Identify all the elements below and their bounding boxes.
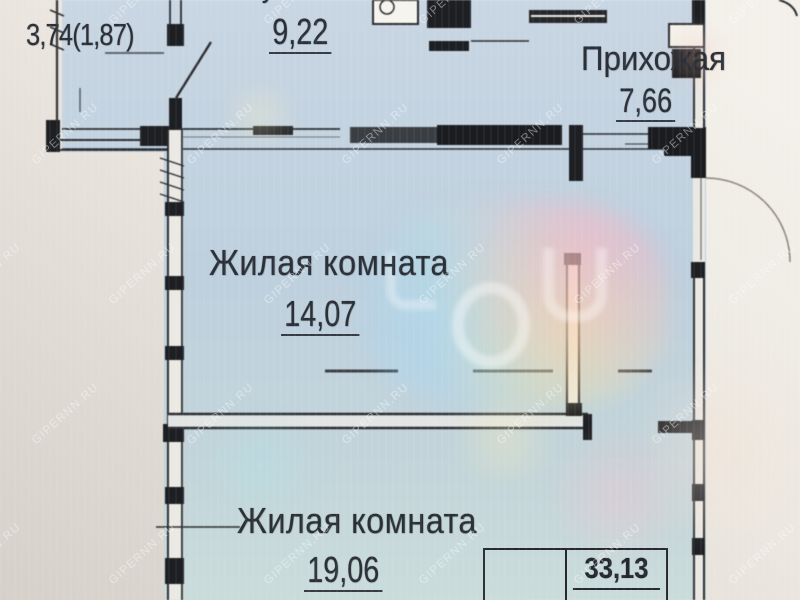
vertical-inner-wall: [564, 253, 582, 416]
area-value-balcony: 3,74(1,87): [26, 19, 134, 50]
left-outer-wall: [160, 130, 184, 600]
area-summary-table: 33,13: [483, 548, 668, 600]
room-label-living-room-2: Жилая комната: [237, 503, 477, 539]
room-label-living-room-1: Жилая комната: [209, 245, 449, 281]
room-label-kitchen: Кухня: [247, 0, 315, 3]
area-value-hallway: 7,66: [616, 84, 675, 122]
area-value-living-room-2: 19,06: [304, 552, 382, 592]
summary-table-empty-cell: [485, 550, 565, 600]
area-value-living-room-1: 14,07: [281, 296, 359, 336]
room-label-hallway: Прихожая: [581, 42, 726, 76]
floor-plan-screenshot: Кухня 9,22 3,74(1,87) Прихожая 7,66 Жила…: [0, 0, 800, 600]
entrance-door-arc: [706, 178, 790, 262]
area-value-kitchen: 9,22: [269, 14, 331, 54]
total-area-value: 33,13: [573, 550, 660, 590]
